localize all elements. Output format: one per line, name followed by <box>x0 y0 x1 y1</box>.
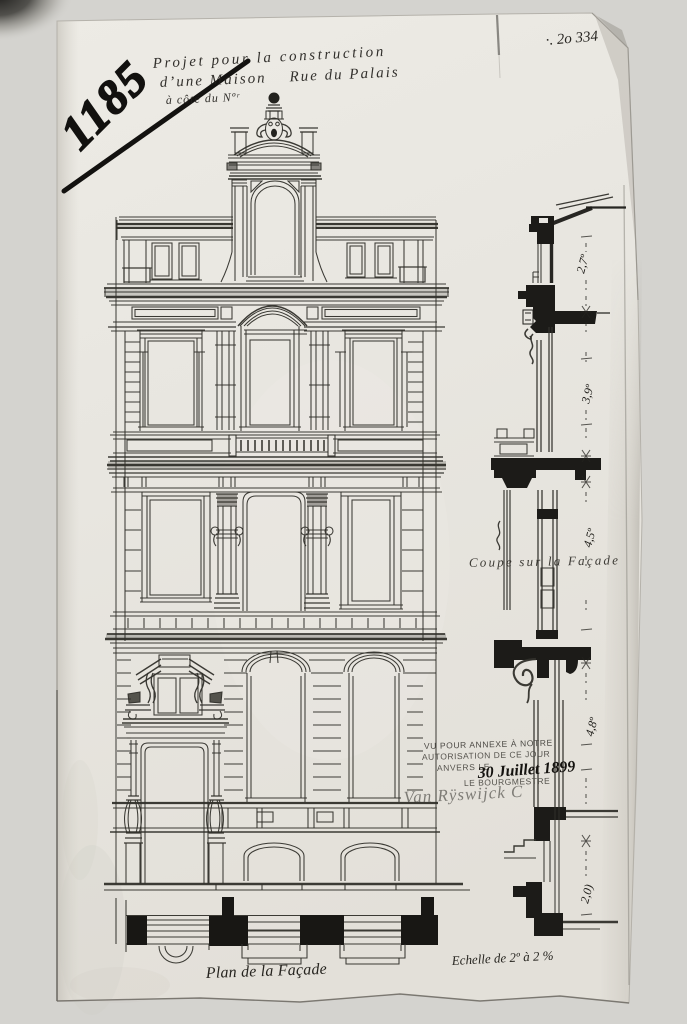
svg-text:Coupe sur la Façade: Coupe sur la Façade <box>469 552 620 570</box>
